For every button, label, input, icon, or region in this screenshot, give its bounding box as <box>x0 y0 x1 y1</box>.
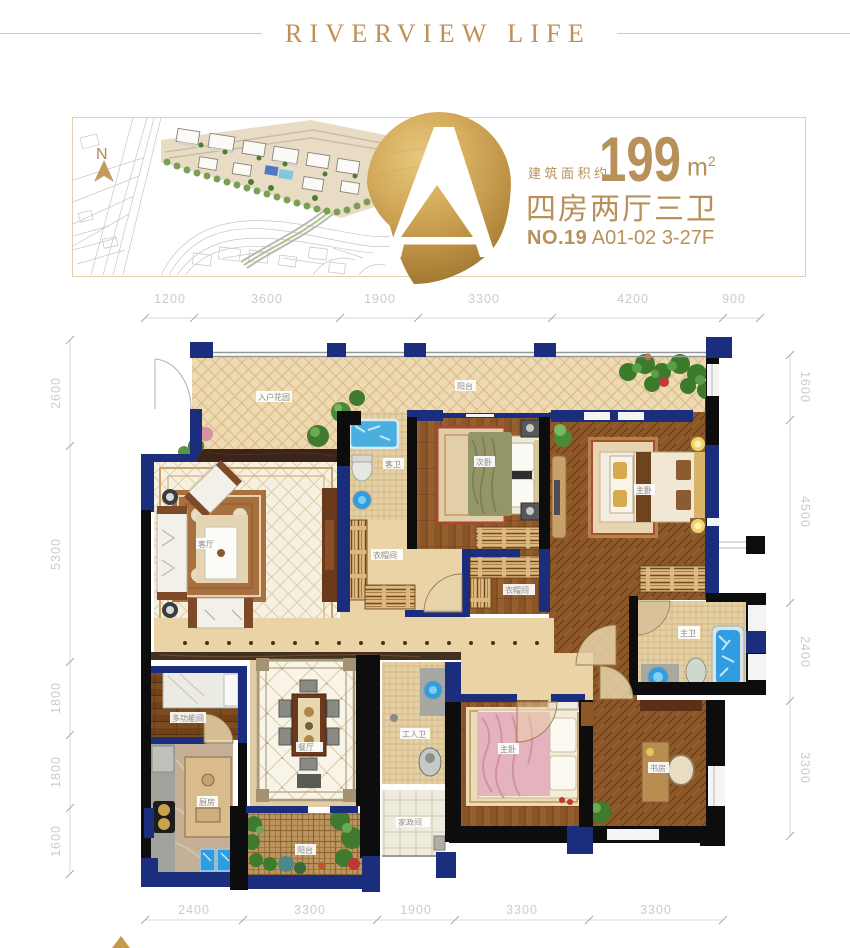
svg-text:工人卫: 工人卫 <box>402 730 426 739</box>
svg-text:客厅: 客厅 <box>198 539 214 549</box>
svg-text:客卫: 客卫 <box>385 459 401 469</box>
svg-text:阳台: 阳台 <box>457 381 473 391</box>
svg-text:1200: 1200 <box>154 292 186 306</box>
svg-text:餐厅: 餐厅 <box>298 743 314 752</box>
svg-text:3300: 3300 <box>640 903 672 917</box>
svg-text:1900: 1900 <box>364 292 396 306</box>
svg-text:2400: 2400 <box>798 636 812 668</box>
svg-text:家政间: 家政间 <box>398 817 422 827</box>
svg-text:厨房: 厨房 <box>199 797 215 807</box>
svg-text:衣帽间: 衣帽间 <box>373 550 397 560</box>
svg-text:3300: 3300 <box>506 903 538 917</box>
svg-text:入户花园: 入户花园 <box>258 392 290 402</box>
svg-text:2600: 2600 <box>49 377 63 409</box>
svg-text:3300: 3300 <box>294 903 326 917</box>
svg-text:1600: 1600 <box>49 825 63 857</box>
svg-text:3300: 3300 <box>468 292 500 306</box>
svg-text:4500: 4500 <box>798 496 812 528</box>
svg-text:3600: 3600 <box>251 292 283 306</box>
svg-text:衣帽间: 衣帽间 <box>505 585 529 595</box>
svg-text:阳台: 阳台 <box>297 845 313 855</box>
svg-text:3300: 3300 <box>798 752 812 784</box>
svg-text:主卧: 主卧 <box>636 485 652 495</box>
svg-text:900: 900 <box>722 292 746 306</box>
svg-text:1800: 1800 <box>49 756 63 788</box>
svg-text:2400: 2400 <box>178 903 210 917</box>
svg-text:主卫: 主卫 <box>680 628 696 638</box>
svg-text:5300: 5300 <box>49 538 63 570</box>
svg-text:主卧: 主卧 <box>500 744 516 754</box>
svg-text:多功能间: 多功能间 <box>172 713 204 723</box>
svg-text:1600: 1600 <box>798 371 812 403</box>
svg-text:1800: 1800 <box>49 682 63 714</box>
svg-text:1900: 1900 <box>400 903 432 917</box>
svg-text:次卧: 次卧 <box>476 457 492 467</box>
svg-text:4200: 4200 <box>617 292 649 306</box>
svg-text:书房: 书房 <box>650 763 666 773</box>
